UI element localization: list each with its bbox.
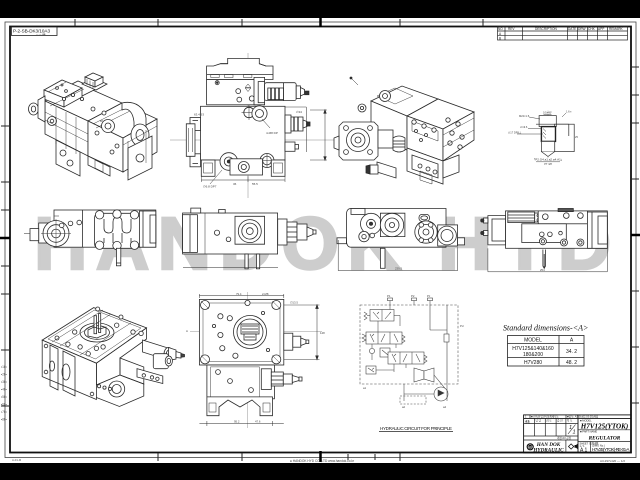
svg-text:∅19.6: ∅19.6 xyxy=(520,125,528,129)
svg-text:Standard dimensions-<A>: Standard dimensions-<A> xyxy=(503,324,588,333)
svg-text:95.2: 95.2 xyxy=(234,420,240,424)
svg-text:239.5: 239.5 xyxy=(395,267,402,271)
svg-text:•1b•: •1b• xyxy=(1,365,7,369)
svg-text:결재: 결재 xyxy=(525,420,530,424)
svg-text:4-M8 DP: 4-M8 DP xyxy=(266,131,278,135)
svg-text:∅13.5: ∅13.5 xyxy=(290,301,298,305)
svg-text:Pz: Pz xyxy=(427,294,431,298)
svg-text:REMARK: REMARK xyxy=(609,27,624,31)
svg-text:DATE: DATE xyxy=(568,27,576,31)
svg-text:•5b•: •5b• xyxy=(1,395,7,399)
svg-text:0.5×45°: 0.5×45° xyxy=(543,111,552,115)
svg-text:48. 2: 48. 2 xyxy=(566,360,577,366)
svg-text:P1: P1 xyxy=(387,294,391,298)
svg-text:36: 36 xyxy=(233,182,237,186)
svg-text:H7V25(YTOK)-RE-01-A: H7V25(YTOK)-RE-01-A xyxy=(592,447,630,452)
svg-text:•2b•: •2b• xyxy=(1,373,7,377)
svg-text:254: 254 xyxy=(540,268,545,272)
svg-text:■양식: A3-01(02.03.05)개정: ■양식: A3-01(02.03.05)개정 xyxy=(567,415,599,419)
svg-text:180&200: 180&200 xyxy=(523,352,543,358)
svg-text:DRW: DRW xyxy=(578,27,586,31)
svg-text:A-01-M: A-01-M xyxy=(12,458,22,462)
svg-text:NO: NO xyxy=(498,27,503,31)
svg-text:HYDRAULIC CIRCUIT FOR PRINCIPL: HYDRAULIC CIRCUIT FOR PRINCIPLE xyxy=(380,426,452,431)
svg-text:A: A xyxy=(186,329,188,333)
svg-text:Pd: Pd xyxy=(460,324,464,328)
svg-text:승 인: 승 인 xyxy=(557,419,563,423)
svg-text:25: 25 xyxy=(575,135,578,139)
svg-text:검 도: 검 도 xyxy=(546,419,552,423)
svg-text:APP: APP xyxy=(598,27,604,31)
svg-text:H7V125(YTOK): H7V125(YTOK) xyxy=(580,422,629,430)
svg-text:∅17 DRILL: ∅17 DRILL xyxy=(508,131,522,135)
svg-text:•8b•: •8b• xyxy=(1,418,7,422)
svg-text:•4b•: •4b• xyxy=(1,388,7,392)
svg-text:∅6.8 DP7: ∅6.8 DP7 xyxy=(203,185,217,189)
svg-text:•3b•: •3b• xyxy=(1,380,7,384)
svg-text:a4: a4 xyxy=(443,405,447,409)
svg-text:a1: a1 xyxy=(363,386,367,390)
svg-text:MODEL: MODEL xyxy=(524,337,542,343)
svg-text:1.6⋍: 1.6⋍ xyxy=(566,110,573,114)
svg-text:개정-03 공정: 개정-03 공정 xyxy=(557,436,572,440)
svg-text:A: A xyxy=(570,337,574,343)
svg-text:47.6: 47.6 xyxy=(255,420,261,424)
svg-text:•7b•: •7b• xyxy=(1,410,7,414)
svg-text:B: B xyxy=(499,37,501,41)
svg-text:HYDRAULIC: HYDRAULIC xyxy=(532,448,564,454)
svg-text:1: 1 xyxy=(573,430,576,436)
svg-text:55.5: 55.5 xyxy=(252,182,258,186)
svg-text:REGULATOR: REGULATOR xyxy=(589,435,621,441)
svg-text:● HANDOK HYD CO.,LTD www.hand: ● HANDOK HYD CO.,LTD www.handok.co.kr xyxy=(290,459,355,463)
svg-text:H7V125&140&160: H7V125&140&160 xyxy=(512,346,554,352)
svg-text:A: A xyxy=(499,32,502,36)
svg-text:PT 3/8: PT 3/8 xyxy=(544,162,552,166)
svg-text:「P2.G4.a1.a2.a4.A1」: 「P2.G4.a1.a2.a4.A1」 xyxy=(532,157,564,162)
svg-text:2-M8: 2-M8 xyxy=(262,292,269,296)
svg-text:M22×1.5: M22×1.5 xyxy=(519,114,530,118)
svg-text:63.4 63: 63.4 63 xyxy=(194,113,204,117)
svg-text:A3-297x420 — 1/2: A3-297x420 — 1/2 xyxy=(600,459,625,463)
svg-text:■ 한독유압(주)설계제작도: ■ 한독유압(주)설계제작도 xyxy=(531,415,559,419)
svg-text:-- --- ●●: -- --- ●● xyxy=(36,32,46,36)
svg-text:REV: REV xyxy=(508,27,515,31)
svg-text:•6b•: •6b• xyxy=(1,403,7,407)
svg-text:CHK: CHK xyxy=(588,27,596,31)
svg-text:척 도: 척 도 xyxy=(567,419,573,423)
svg-text:∅34: ∅34 xyxy=(296,110,302,114)
svg-text:P2: P2 xyxy=(411,294,415,298)
svg-text:a2: a2 xyxy=(402,405,406,409)
svg-text:H7V280: H7V280 xyxy=(524,360,542,366)
svg-text:A 1: A 1 xyxy=(580,448,587,454)
svg-text:담 당: 담 당 xyxy=(536,419,542,423)
svg-text:148: 148 xyxy=(320,331,325,335)
svg-text:79.4: 79.4 xyxy=(236,292,242,296)
svg-text:34. 2: 34. 2 xyxy=(566,349,577,355)
svg-text:DESCRIPTION: DESCRIPTION xyxy=(535,27,557,31)
svg-text:B1: B1 xyxy=(100,119,104,123)
